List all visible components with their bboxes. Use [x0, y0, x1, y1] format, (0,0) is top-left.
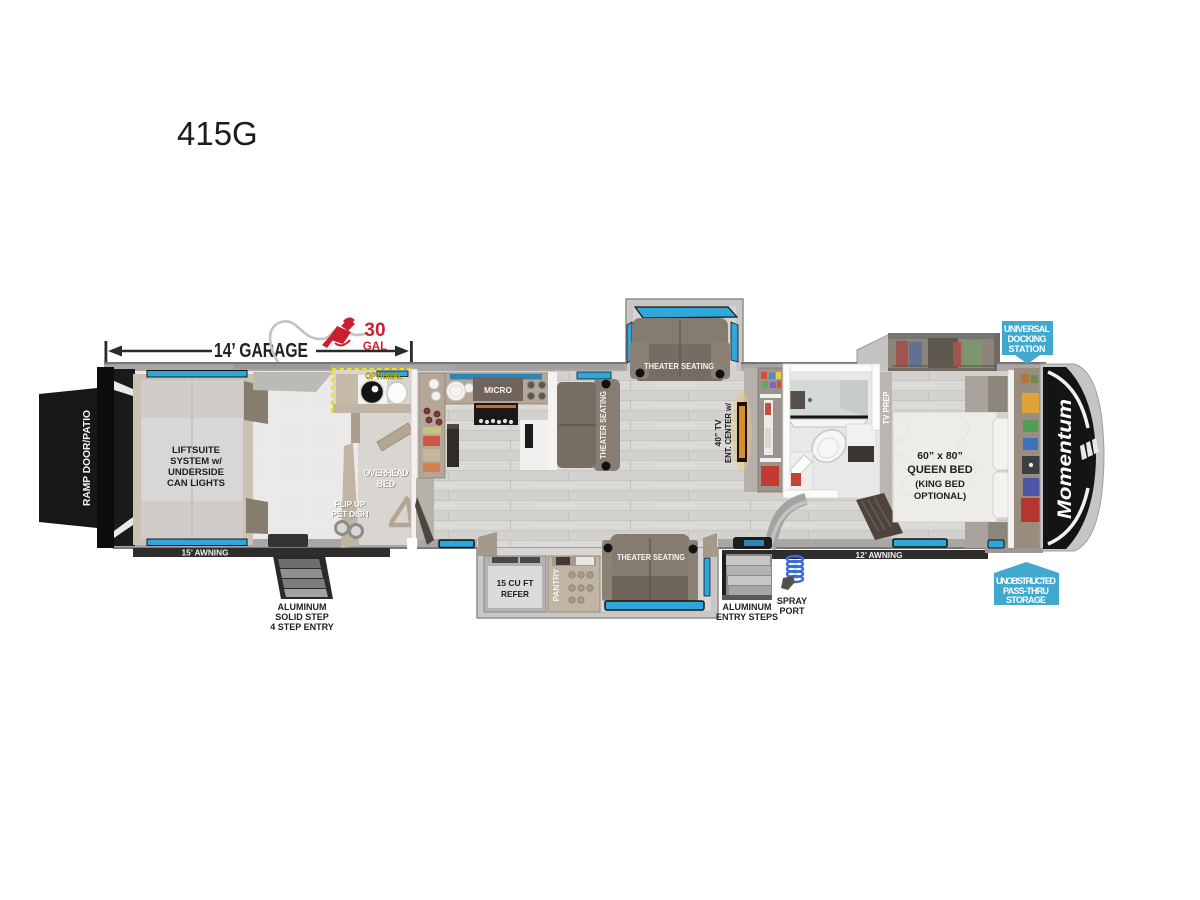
- svg-text:ENTRY STEPS: ENTRY STEPS: [716, 612, 778, 622]
- svg-text:UNDERSIDE: UNDERSIDE: [168, 467, 224, 478]
- svg-text:UNOBSTRUCTED: UNOBSTRUCTED: [996, 576, 1057, 586]
- svg-text:15 CU FT: 15 CU FT: [497, 578, 534, 588]
- svg-text:40” TV: 40” TV: [713, 419, 723, 446]
- svg-text:DOCKING: DOCKING: [1008, 334, 1047, 344]
- svg-text:SOLID STEP: SOLID STEP: [275, 612, 329, 622]
- svg-text:OPTIONAL): OPTIONAL): [914, 491, 966, 502]
- svg-text:SPRAY: SPRAY: [777, 596, 807, 606]
- svg-text:ENT. CENTER w/: ENT. CENTER w/: [723, 402, 733, 463]
- svg-text:FLIP UP: FLIP UP: [335, 499, 366, 509]
- svg-text:TV PREP: TV PREP: [882, 391, 891, 425]
- svg-text:CAN LIGHTS: CAN LIGHTS: [167, 478, 225, 489]
- svg-text:LIFTSUITE: LIFTSUITE: [172, 445, 220, 456]
- svg-text:PANTRY: PANTRY: [552, 568, 561, 602]
- svg-text:STORAGE: STORAGE: [1006, 595, 1046, 605]
- svg-text:STATION: STATION: [1009, 344, 1046, 354]
- svg-text:SYSTEM w/: SYSTEM w/: [170, 456, 222, 467]
- svg-text:30: 30: [364, 320, 385, 341]
- svg-text:PORT: PORT: [779, 606, 805, 616]
- svg-text:GAL: GAL: [363, 341, 387, 353]
- svg-text:PET DISH: PET DISH: [332, 509, 369, 519]
- svg-text:60” x 80”: 60” x 80”: [917, 450, 963, 462]
- svg-text:UNIVERSAL: UNIVERSAL: [1004, 324, 1051, 334]
- svg-text:THEATER SEATING: THEATER SEATING: [617, 552, 685, 562]
- svg-text:Momentum: Momentum: [1055, 399, 1076, 519]
- svg-text:12’ AWNING: 12’ AWNING: [856, 551, 903, 560]
- svg-text:THEATER SEATING: THEATER SEATING: [598, 391, 608, 459]
- svg-text:QUEEN BED: QUEEN BED: [907, 464, 972, 476]
- svg-text:MICRO: MICRO: [484, 385, 512, 395]
- svg-text:OVERHEAD: OVERHEAD: [364, 468, 409, 478]
- svg-text:BED: BED: [377, 479, 396, 489]
- svg-text:OPTIONAL: OPTIONAL: [366, 371, 404, 381]
- svg-text:ALUMINUM: ALUMINUM: [278, 602, 327, 612]
- svg-text:4 STEP ENTRY: 4 STEP ENTRY: [270, 622, 334, 632]
- svg-text:REFER: REFER: [501, 589, 529, 599]
- svg-text:RAMP DOOR/PATIO: RAMP DOOR/PATIO: [82, 410, 93, 506]
- svg-text:ALUMINUM: ALUMINUM: [723, 602, 772, 612]
- svg-text:415G: 415G: [177, 115, 258, 152]
- svg-text:14’ GARAGE: 14’ GARAGE: [214, 340, 308, 362]
- svg-text:THEATER SEATING: THEATER SEATING: [644, 361, 714, 371]
- svg-text:15’ AWNING: 15’ AWNING: [182, 549, 229, 558]
- svg-text:(KING BED: (KING BED: [915, 479, 965, 490]
